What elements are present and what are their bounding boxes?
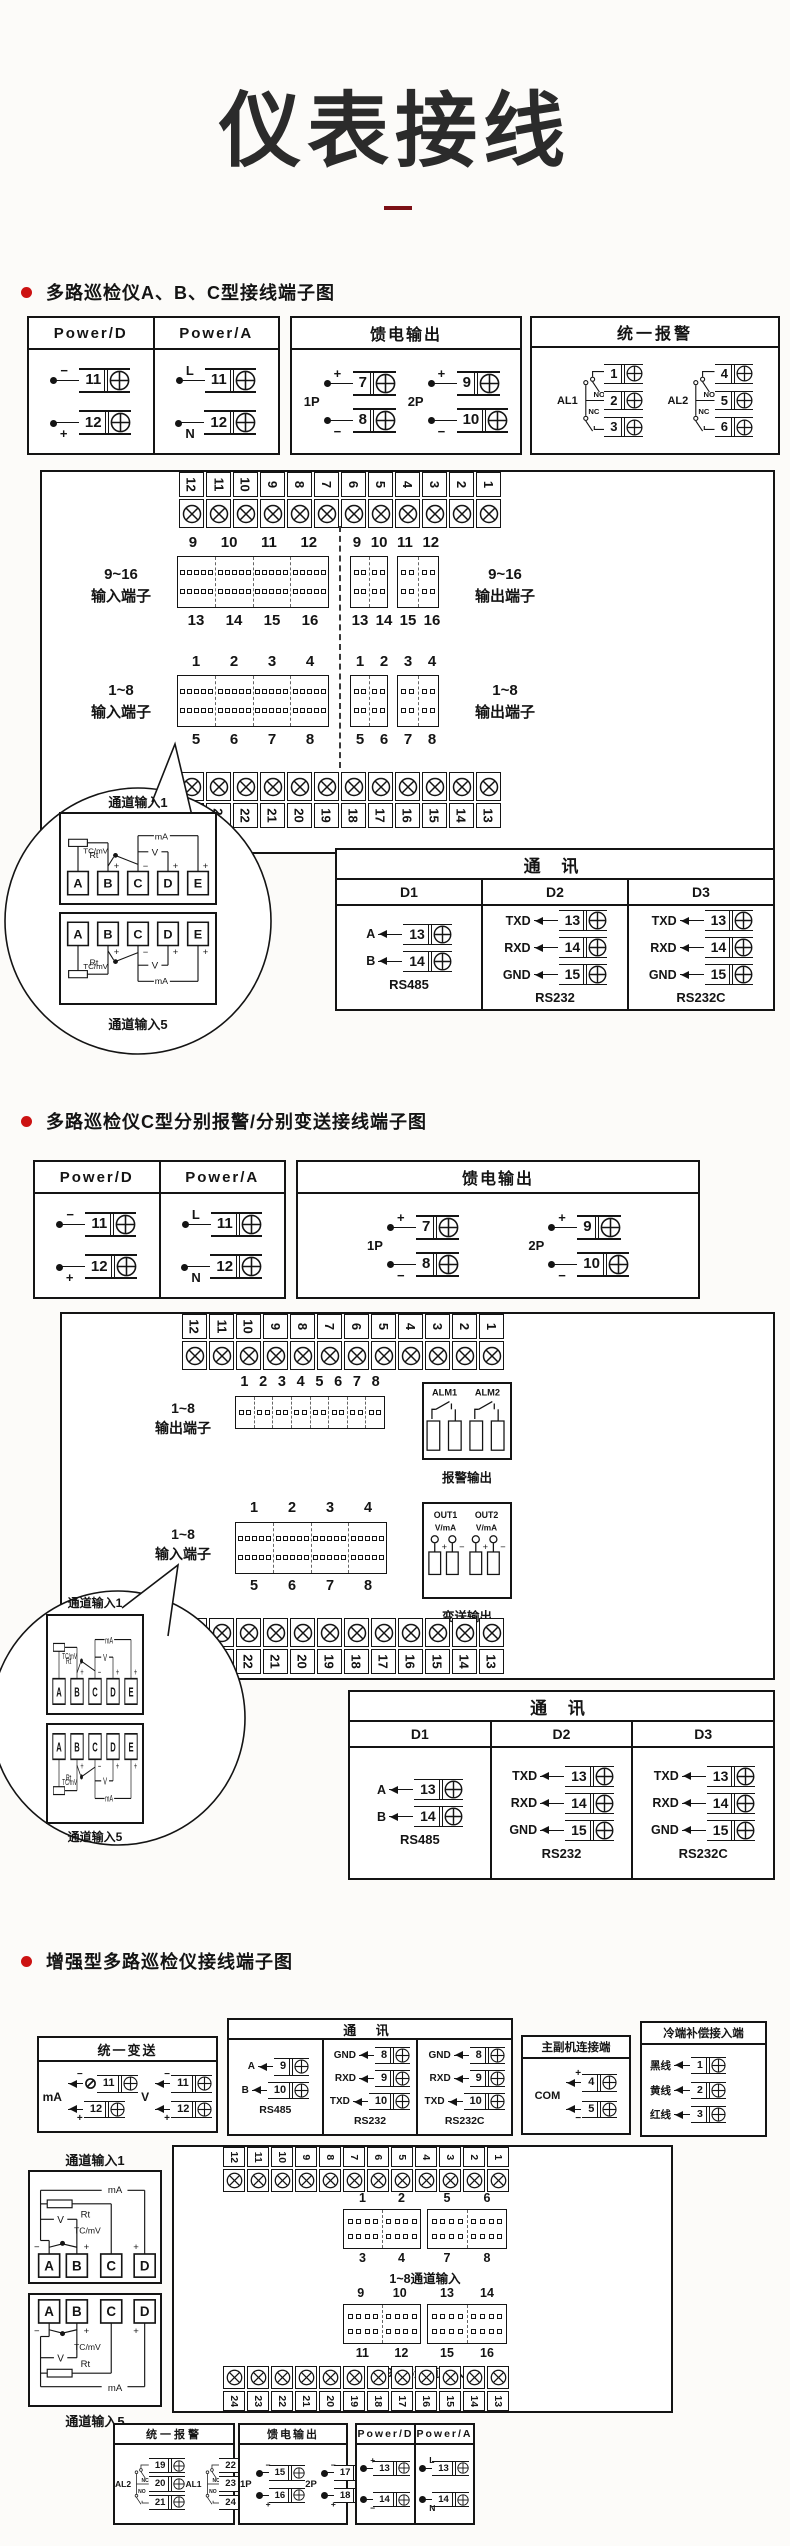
screw-terminal-icon bbox=[347, 1346, 367, 1366]
screw-terminal-icon bbox=[293, 2467, 305, 2479]
pin-group bbox=[178, 676, 216, 726]
polarity-sign: L bbox=[192, 1208, 200, 1221]
screw-terminal-icon bbox=[418, 2369, 435, 2386]
com-label: COM bbox=[535, 2090, 561, 2102]
terminal-number: 18 bbox=[334, 2489, 354, 2502]
comm-channel-head: D3 bbox=[633, 1722, 773, 1746]
svg-text:mA: mA bbox=[108, 2185, 123, 2196]
comm-protocol-label: RS232C bbox=[679, 1846, 728, 1861]
strip-terminal: 10 bbox=[233, 472, 258, 528]
strip-terminal: 14 bbox=[463, 2366, 485, 2411]
svg-text:TC/mV: TC/mV bbox=[74, 2342, 101, 2352]
svg-text:V: V bbox=[152, 961, 159, 972]
screw-terminal-icon bbox=[371, 504, 391, 524]
terminal-row: TXD10 bbox=[330, 2093, 410, 2110]
transmit-group: mA−11+12 bbox=[43, 2075, 138, 2117]
comm-protocol-label: RS485 bbox=[389, 977, 429, 992]
terminal: 9 bbox=[577, 1215, 620, 1240]
polarity-sign: − bbox=[438, 425, 446, 438]
power-col: −11+12 bbox=[29, 350, 155, 453]
svg-text:V: V bbox=[103, 1651, 107, 1663]
terminal-row: +9 bbox=[429, 371, 509, 396]
pin-group bbox=[329, 1397, 348, 1428]
strip-number: 5 bbox=[371, 1314, 396, 1339]
channel-wiring-box-flipped: ABCDmA−++RtVTC/mV bbox=[28, 2293, 162, 2407]
polarity-sign: + bbox=[558, 1211, 566, 1224]
terminal-number: 5 bbox=[715, 392, 731, 410]
terminal-number: 8 bbox=[375, 2048, 390, 2063]
terminal-annotation: RXD bbox=[504, 941, 530, 955]
screw-terminal-icon bbox=[734, 938, 753, 957]
terminal: 12 bbox=[204, 410, 256, 435]
svg-text:−: − bbox=[34, 2242, 40, 2253]
terminal-row: A13 bbox=[366, 924, 452, 945]
feed-group: 1P−15+16 bbox=[240, 2465, 305, 2503]
connector-number: 15 bbox=[264, 612, 281, 629]
screw-terminal-icon bbox=[395, 2048, 410, 2063]
polarity-sign: N bbox=[185, 427, 194, 440]
terminal-row: +9 bbox=[549, 1215, 629, 1240]
section-3-title: 增强型多路巡检仪接线端子图 bbox=[46, 1948, 293, 1974]
terminal: 12 bbox=[79, 410, 131, 435]
svg-text:mA: mA bbox=[105, 1635, 114, 1646]
polarity-sign: + bbox=[334, 367, 342, 380]
svg-text:NC: NC bbox=[699, 407, 711, 416]
terminal-annotation: TXD bbox=[654, 1769, 679, 1783]
strip-terminal: 6 bbox=[367, 2147, 389, 2192]
strip-terminal: 11 bbox=[209, 1314, 234, 1370]
arrow-left-icon bbox=[679, 1826, 691, 1834]
terminal-number: 3 bbox=[691, 2107, 706, 2122]
terminal-annotation: TXD bbox=[652, 914, 677, 928]
connector-number: 8 bbox=[364, 1578, 372, 1594]
polarity-sign: + bbox=[370, 2456, 375, 2465]
strip-number: 4 bbox=[398, 1314, 423, 1339]
strip-number: 22 bbox=[271, 2391, 293, 2411]
terminal-row: −11 bbox=[67, 2075, 138, 2092]
svg-text:mA: mA bbox=[155, 831, 169, 841]
strip-terminal: 14 bbox=[449, 772, 474, 828]
terminal: 16 bbox=[269, 2488, 306, 2503]
strip-terminal: 7 bbox=[314, 472, 339, 528]
strip-terminal: 8 bbox=[319, 2147, 341, 2192]
screw-terminal-icon bbox=[595, 1821, 614, 1840]
relay-contact-icon: NCNO bbox=[203, 2456, 220, 2512]
transmit-group: V−11+12 bbox=[141, 2075, 212, 2117]
terminal: 5 bbox=[582, 2101, 617, 2118]
terminal-row: +4 bbox=[565, 2074, 617, 2091]
terminal-annotation: 黄线 bbox=[650, 2083, 671, 2098]
terminal-annotation: GND bbox=[509, 1823, 537, 1837]
terminal-annotation: RXD bbox=[335, 2073, 356, 2084]
terminal-row: A13 bbox=[377, 1779, 463, 1800]
svg-text:+: + bbox=[173, 947, 178, 957]
power-col-title: Power/D bbox=[29, 318, 155, 348]
strip-terminal: 15 bbox=[422, 772, 447, 828]
svg-text:D: D bbox=[110, 1685, 116, 1700]
wire-end-dot bbox=[50, 420, 57, 427]
communication-block-1: 通 讯D1D2D3A13B14RS485TXD13RXD14GND15RS232… bbox=[335, 848, 775, 1011]
connector-number: 10 bbox=[371, 534, 388, 551]
screw-terminal-icon bbox=[298, 2172, 315, 2189]
terminal-row: +12 bbox=[57, 1254, 137, 1279]
terminal-row: +7 bbox=[325, 371, 396, 396]
pin-group bbox=[351, 676, 370, 726]
screw-terminal-icon bbox=[479, 373, 500, 394]
channel-input-5-label: 通道输入5 bbox=[59, 1014, 217, 1033]
terminal: 10 bbox=[268, 2082, 309, 2099]
svg-text:+: + bbox=[116, 1667, 120, 1678]
terminal: 11 bbox=[85, 1212, 136, 1237]
strip-number: 10 bbox=[236, 1314, 261, 1339]
terminal-annotation: GND bbox=[503, 968, 531, 982]
screw-terminal-icon bbox=[266, 1346, 286, 1366]
comm-protocol-label: RS232 bbox=[535, 990, 575, 1005]
screw-terminal-icon bbox=[425, 504, 445, 524]
svg-text:−: − bbox=[143, 947, 148, 957]
strip-terminal: 20 bbox=[319, 2366, 341, 2411]
screw-terminal-icon bbox=[263, 504, 283, 524]
screw-terminal-icon bbox=[482, 1623, 502, 1643]
svg-text:C: C bbox=[106, 2258, 116, 2273]
group-label: AL2 bbox=[115, 2479, 131, 2489]
terminal-row: GND15 bbox=[651, 1820, 755, 1841]
svg-text:+: + bbox=[134, 1761, 138, 1772]
screw-terminal-icon bbox=[293, 1346, 313, 1366]
screw-terminal-icon bbox=[347, 1623, 367, 1643]
terminal: 11 bbox=[79, 368, 130, 393]
terminal: 1 bbox=[604, 364, 642, 384]
strip-terminal: 16 bbox=[415, 2366, 437, 2411]
svg-text:+: + bbox=[114, 947, 119, 957]
wire-end-dot bbox=[548, 1261, 555, 1268]
section-2-title: 多路巡检仪C型分别报警/分别变送接线端子图 bbox=[46, 1108, 427, 1134]
wire-end-dot bbox=[387, 1261, 394, 1268]
svg-text:A: A bbox=[56, 1740, 62, 1755]
screw-terminal-icon bbox=[294, 2083, 309, 2098]
group-label: 2P bbox=[528, 1238, 544, 1253]
power-terminals-block: Power/DPower/A+13−14L13N14 bbox=[355, 2423, 475, 2525]
strip-number: 8 bbox=[290, 1314, 315, 1339]
terminal-annotation: RXD bbox=[652, 1796, 678, 1810]
connector-number: 2 bbox=[398, 2191, 405, 2205]
power-col: −11+12 bbox=[35, 1194, 161, 1297]
terminal: 13 bbox=[432, 2461, 469, 2476]
connector-number: 9 bbox=[357, 2286, 364, 2300]
connector-number: 4 bbox=[428, 653, 436, 670]
screw-terminal-icon bbox=[274, 2369, 291, 2386]
terminal: 11 bbox=[171, 2075, 212, 2092]
pin-group bbox=[351, 557, 370, 607]
strip-number: 17 bbox=[371, 1649, 396, 1674]
terminal: 5 bbox=[715, 391, 753, 411]
screw-terminal-icon bbox=[173, 2460, 185, 2472]
terminal-number: 9 bbox=[274, 2059, 289, 2074]
strip-terminal: 13 bbox=[476, 772, 501, 828]
connector-number: 11 bbox=[356, 2346, 369, 2360]
polarity-sign: + bbox=[331, 2500, 336, 2509]
strip-number: 20 bbox=[290, 1649, 315, 1674]
comm-channel-head: D1 bbox=[337, 880, 483, 904]
strip-terminal: 15 bbox=[425, 1618, 450, 1674]
terminal: 12 bbox=[171, 2101, 212, 2118]
pin-group bbox=[419, 557, 439, 607]
connector-number: 7 bbox=[353, 1374, 361, 1390]
connector-number: 3 bbox=[404, 653, 412, 670]
svg-text:−: − bbox=[98, 1761, 102, 1772]
strip-terminal: 1 bbox=[487, 2147, 509, 2192]
terminal: 2 bbox=[691, 2082, 726, 2099]
svg-text:E: E bbox=[194, 877, 202, 891]
screw-terminal-icon bbox=[428, 1623, 448, 1643]
screw-terminal-icon bbox=[398, 2462, 410, 2474]
svg-text:Rt: Rt bbox=[81, 2359, 91, 2370]
connector-number: 7 bbox=[444, 2251, 451, 2265]
svg-text:NC: NC bbox=[142, 2478, 149, 2484]
screw-terminal-icon bbox=[479, 504, 499, 524]
terminal: 10 bbox=[577, 1252, 629, 1277]
strip-terminal: 1 bbox=[479, 1314, 504, 1370]
strip-number: 13 bbox=[487, 2391, 509, 2411]
strip-number: 4 bbox=[415, 2147, 437, 2167]
channel-wiring-diagram: ABCDERtTC/mV+−V+mA+ bbox=[63, 816, 213, 901]
strip-number: 10 bbox=[233, 472, 258, 497]
screw-terminal-icon bbox=[588, 965, 607, 984]
svg-text:−: − bbox=[459, 1542, 464, 1552]
wire-end-dot bbox=[56, 1221, 63, 1228]
terminal-row: +12 bbox=[154, 2101, 212, 2118]
svg-text:+: + bbox=[116, 1761, 120, 1772]
terminal: 8 bbox=[353, 408, 396, 433]
arrow-left-icon bbox=[531, 944, 543, 952]
strip-number: 19 bbox=[314, 803, 339, 828]
pin-group bbox=[428, 2210, 468, 2248]
screw-terminal-icon bbox=[374, 1346, 394, 1366]
strip-number: 8 bbox=[319, 2147, 341, 2167]
pin-group bbox=[383, 2305, 421, 2343]
strip-terminal: 19 bbox=[317, 1618, 342, 1674]
strip-terminal: 7 bbox=[343, 2147, 365, 2192]
screw-terminal-icon bbox=[173, 2496, 185, 2508]
pin-group bbox=[254, 676, 292, 726]
strip-number: 17 bbox=[368, 803, 393, 828]
arrow-left-icon bbox=[677, 944, 689, 952]
strip-number: 18 bbox=[344, 1649, 369, 1674]
strip-number: 3 bbox=[422, 472, 447, 497]
screw-terminal-icon bbox=[452, 777, 472, 797]
strip-terminal: 17 bbox=[371, 1618, 396, 1674]
terminal-annotation: RXD bbox=[430, 2073, 451, 2084]
svg-text:−: − bbox=[98, 1667, 102, 1678]
svg-text:E: E bbox=[128, 1685, 133, 1700]
comm-protocol-label: RS485 bbox=[400, 1832, 440, 1847]
svg-text:C: C bbox=[92, 1685, 98, 1700]
svg-text:NO: NO bbox=[593, 390, 604, 399]
terminal-row: TXD13 bbox=[506, 910, 608, 931]
terminal: 8 bbox=[416, 1252, 459, 1277]
terminal: 1 bbox=[691, 2057, 726, 2074]
screw-terminal-icon bbox=[490, 2172, 507, 2189]
strip-terminal: 5 bbox=[391, 2147, 413, 2192]
svg-text:+: + bbox=[84, 2326, 90, 2337]
svg-text:mA: mA bbox=[105, 1793, 114, 1804]
screw-terminal-icon bbox=[398, 504, 418, 524]
connector-number: 16 bbox=[302, 612, 319, 629]
terminal-number: 7 bbox=[416, 1217, 433, 1237]
terminal-row: A9 bbox=[248, 2058, 309, 2075]
connector-number: 2 bbox=[230, 653, 238, 670]
comm-protocol-label: RS232 bbox=[542, 1846, 582, 1861]
screw-terminal-icon bbox=[322, 2172, 339, 2189]
terminal-number: 8 bbox=[470, 2048, 485, 2063]
strip-terminal: 4 bbox=[395, 472, 420, 528]
screw-terminal-icon bbox=[110, 412, 131, 433]
screw-terminal-icon bbox=[466, 2172, 483, 2189]
svg-text:D: D bbox=[140, 2258, 150, 2273]
pin-group bbox=[291, 676, 328, 726]
pin-group bbox=[312, 1523, 350, 1573]
terminal-row: GND15 bbox=[649, 964, 753, 985]
screw-terminal-icon bbox=[298, 2369, 315, 2386]
screw-terminal-icon bbox=[736, 392, 753, 409]
strip-number: 6 bbox=[344, 1314, 369, 1339]
screw-terminal-icon bbox=[600, 1217, 621, 1238]
power-col: +13−14 bbox=[357, 2445, 416, 2523]
terminal-row: B10 bbox=[242, 2082, 309, 2099]
polarity-sign: + bbox=[266, 2500, 271, 2509]
connector-number: 1 bbox=[359, 2191, 366, 2205]
svg-text:A: A bbox=[44, 2304, 54, 2319]
terminal-number: 13 bbox=[705, 911, 730, 930]
terminal: 9 bbox=[470, 2070, 505, 2087]
arrow-left-icon bbox=[375, 930, 387, 938]
wiring-diagram-page: 仪表接线 多路巡检仪A、B、C型接线端子图 Power/DPower/A−11+… bbox=[0, 0, 790, 2546]
svg-text:mA: mA bbox=[108, 2383, 123, 2394]
pin-group bbox=[419, 676, 439, 726]
power-col: L11N12 bbox=[161, 1194, 285, 1297]
block-title: 通 讯 bbox=[337, 850, 773, 880]
connector-number: 6 bbox=[288, 1578, 296, 1594]
wire-end-dot bbox=[321, 2492, 328, 2499]
terminal-row: RXD14 bbox=[511, 1793, 614, 1814]
terminal-row: GND8 bbox=[334, 2047, 410, 2064]
polarity-sign: + bbox=[397, 1211, 405, 1224]
strip-number: 9 bbox=[263, 1314, 288, 1339]
pin-group bbox=[236, 1397, 255, 1428]
screw-terminal-icon bbox=[736, 365, 753, 382]
screw-terminal-icon bbox=[398, 2494, 410, 2506]
strip-terminal: 2 bbox=[463, 2147, 485, 2192]
terminal-number: 15 bbox=[705, 965, 730, 984]
transmit-output-drawing: OUT1V/mA+−OUT2V/mA+− bbox=[424, 1504, 510, 1597]
terminal-number: 11 bbox=[205, 370, 230, 390]
terminal-number: 6 bbox=[715, 418, 731, 436]
terminal-number: 11 bbox=[85, 1214, 110, 1234]
wire-end-dot bbox=[419, 2496, 426, 2503]
group-label: 2P bbox=[305, 2479, 317, 2490]
strip-number: 21 bbox=[295, 2391, 317, 2411]
terminal: 13 bbox=[565, 1766, 614, 1787]
svg-text:V: V bbox=[57, 2215, 64, 2226]
screw-terminal-icon bbox=[375, 373, 396, 394]
terminal-number: 8 bbox=[416, 1254, 433, 1274]
screw-terminal-icon bbox=[433, 952, 452, 971]
terminal-number: 10 bbox=[369, 2094, 390, 2109]
strip-terminal: 10 bbox=[271, 2147, 293, 2192]
strip-terminal: 24 bbox=[223, 2366, 245, 2411]
in-1-8-label: 1~8输入端子 bbox=[70, 680, 172, 724]
block-title: 统一报警 bbox=[532, 318, 778, 348]
terminal-row: −11 bbox=[51, 368, 130, 393]
screw-terminal-icon bbox=[444, 1807, 463, 1826]
arrow-left-icon bbox=[679, 1799, 691, 1807]
terminal-number: 13 bbox=[403, 925, 428, 944]
channel-input-1-label: 通道输入1 bbox=[59, 792, 217, 811]
polarity-sign: − bbox=[164, 2070, 170, 2080]
block-title: 通 讯 bbox=[350, 1692, 773, 1722]
connector-number: 6 bbox=[484, 2191, 491, 2205]
feed-output-block: 馈电输出1P+7−82P+9−10 bbox=[290, 316, 522, 455]
terminal-number: 11 bbox=[171, 2076, 192, 2091]
terminal: 11 bbox=[211, 1212, 262, 1237]
terminal: 13 bbox=[707, 1766, 756, 1787]
svg-text:C: C bbox=[92, 1740, 98, 1755]
comm-column: GND8RXD9TXD10RS232C bbox=[418, 2040, 511, 2134]
pin-group bbox=[291, 557, 328, 607]
communication-block-2: 通 讯D1D2D3A13B14RS485TXD13RXD14GND15RS232… bbox=[348, 1690, 775, 1880]
strip-number: 1 bbox=[479, 1314, 504, 1339]
terminal-number: 21 bbox=[149, 2496, 169, 2509]
block-title: 馈电输出 bbox=[240, 2425, 346, 2445]
terminal: 12 bbox=[85, 1254, 137, 1279]
screw-terminal-icon bbox=[317, 504, 337, 524]
terminal-number: 14 bbox=[414, 1807, 439, 1826]
section-1-header: 多路巡检仪A、B、C型接线端子图 bbox=[21, 279, 335, 305]
terminal: 4 bbox=[715, 364, 753, 384]
channel-input-1-label: 通道输入1 bbox=[28, 2150, 162, 2169]
channel-wiring-diagram: ABCDmA−++RtVTC/mV bbox=[31, 2296, 159, 2404]
strip-terminal: 23 bbox=[247, 2366, 269, 2411]
channels-1-8-caption: 1~8通道输入 bbox=[343, 2268, 507, 2287]
terminal: 3 bbox=[691, 2106, 726, 2123]
polarity-sign: − bbox=[331, 2461, 336, 2470]
strip-number: 3 bbox=[425, 1314, 450, 1339]
screw-terminal-icon bbox=[241, 1214, 262, 1235]
terminal-number: 19 bbox=[149, 2459, 169, 2472]
pin-group bbox=[468, 2210, 507, 2248]
screw-terminal-icon bbox=[602, 2102, 617, 2117]
screw-terminal-icon bbox=[490, 2071, 505, 2086]
svg-text:+: + bbox=[134, 1667, 138, 1678]
terminal-row: RXD9 bbox=[335, 2070, 410, 2087]
terminal-board-3: 121110987654321 12 56 34 78 1~8通道输入 910 … bbox=[172, 2145, 673, 2413]
polarity-sign: − bbox=[575, 2114, 581, 2124]
section-3-header: 增强型多路巡检仪接线端子图 bbox=[21, 1948, 293, 1974]
connector-number: 2 bbox=[259, 1374, 267, 1390]
terminal-number: 11 bbox=[97, 2076, 118, 2091]
wire-end-dot bbox=[324, 417, 331, 424]
terminal-annotation: B bbox=[366, 954, 375, 968]
strip-number: 13 bbox=[476, 803, 501, 828]
strip-terminal: 5 bbox=[371, 1314, 396, 1370]
svg-text:B: B bbox=[103, 877, 112, 891]
terminal: 21 bbox=[149, 2495, 186, 2510]
bullet-icon bbox=[21, 1116, 32, 1127]
page-title: 仪表接线 bbox=[0, 64, 790, 183]
terminal-row: −11 bbox=[57, 1212, 136, 1237]
arrow-left-icon bbox=[445, 2098, 457, 2106]
screw-terminal-icon bbox=[455, 1623, 475, 1643]
